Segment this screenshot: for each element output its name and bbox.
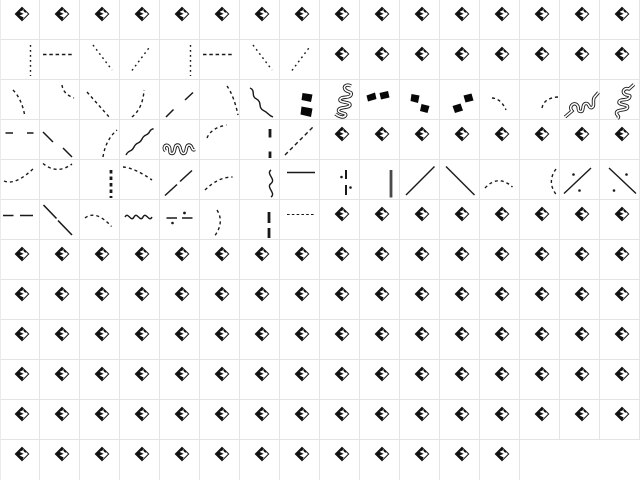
missing-glyph-icon: [240, 360, 280, 400]
missing-glyph-icon: [200, 400, 240, 440]
glyph-cell-notdef[interactable]: [320, 240, 360, 280]
glyph-cell-notdef[interactable]: [560, 40, 600, 80]
glyph-cell-notdef[interactable]: [0, 280, 40, 320]
glyph-cell-squiggle-vline[interactable]: [240, 160, 280, 200]
glyph-cell-dotted-vline[interactable]: [0, 40, 40, 80]
glyph-cell-notdef[interactable]: [280, 360, 320, 400]
missing-glyph-icon: [0, 240, 40, 280]
glyph-cell-notdef[interactable]: [240, 0, 280, 40]
glyph-cell-notdef[interactable]: [400, 400, 440, 440]
missing-glyph-icon: [400, 440, 440, 480]
glyph-cell-notdef[interactable]: [120, 280, 160, 320]
missing-glyph-icon: [400, 0, 440, 40]
glyph-cell-notdef[interactable]: [440, 440, 480, 480]
broken-diag-down-icon: [40, 120, 80, 160]
missing-glyph-icon: [320, 40, 360, 80]
glyph-cell-notdef[interactable]: [400, 360, 440, 400]
missing-glyph-icon: [80, 280, 120, 320]
glyph-cell-notdef[interactable]: [200, 0, 240, 40]
missing-glyph-icon: [240, 240, 280, 280]
glyph-cell-notdef[interactable]: [200, 320, 240, 360]
missing-glyph-icon: [480, 400, 520, 440]
glyph-cell-dotted-diag-up[interactable]: [280, 40, 320, 80]
glyph-cell-notdef[interactable]: [80, 0, 120, 40]
glyph-cell-notdef[interactable]: [40, 320, 80, 360]
glyph-cell-notdef[interactable]: [80, 240, 120, 280]
glyph-cell-notdef[interactable]: [480, 320, 520, 360]
glyph-cell-notdef[interactable]: [400, 320, 440, 360]
glyph-cell-dashdot-diag-down[interactable]: [600, 160, 640, 200]
glyph-cell-dashed-diag-down[interactable]: [80, 80, 120, 120]
missing-glyph-icon: [40, 320, 80, 360]
glyph-cell-notdef[interactable]: [160, 440, 200, 480]
missing-glyph-icon: [400, 280, 440, 320]
glyph-cell-notdef[interactable]: [440, 360, 480, 400]
glyph-cell-notdef[interactable]: [40, 280, 80, 320]
missing-glyph-icon: [520, 280, 560, 320]
glyph-cell-dotted-diag-down[interactable]: [240, 40, 280, 80]
missing-glyph-icon: [80, 400, 120, 440]
glyph-cell-notdef[interactable]: [600, 320, 640, 360]
missing-glyph-icon: [560, 240, 600, 280]
glyph-cell-dashed-paren-left[interactable]: [520, 160, 560, 200]
wave-hline-icon: [120, 200, 160, 240]
missing-glyph-icon: [600, 120, 640, 160]
glyph-cell-notdef[interactable]: [240, 360, 280, 400]
glyph-cell-notdef[interactable]: [360, 440, 400, 480]
glyph-cell-dotted-diag-down[interactable]: [80, 40, 120, 80]
glyph-cell-notdef[interactable]: [520, 360, 560, 400]
glyph-cell-dashed-curve-fall[interactable]: [120, 160, 160, 200]
missing-glyph-icon: [280, 280, 320, 320]
glyph-cell-notdef[interactable]: [40, 0, 80, 40]
glyph-cell-thick-broken-vline2[interactable]: [240, 200, 280, 240]
glyph-cell-meander-v2[interactable]: [600, 80, 640, 120]
missing-glyph-icon: [480, 240, 520, 280]
glyph-cell-notdef[interactable]: [200, 440, 240, 480]
missing-glyph-icon: [160, 320, 200, 360]
missing-glyph-icon: [600, 320, 640, 360]
glyph-cell-notdef[interactable]: [40, 400, 80, 440]
glyph-cell-notdef[interactable]: [600, 0, 640, 40]
missing-glyph-icon: [280, 320, 320, 360]
glyph-cell-notdef[interactable]: [480, 440, 520, 480]
glyph-cell-notdef[interactable]: [0, 440, 40, 480]
solid-diag-down-icon: [440, 160, 480, 200]
glyph-cell-notdef[interactable]: [520, 400, 560, 440]
glyph-cell-squiggle-diag-down[interactable]: [240, 80, 280, 120]
glyph-cell-notdef[interactable]: [600, 360, 640, 400]
glyph-cell-solid-diag-down-broken[interactable]: [40, 200, 80, 240]
missing-glyph-icon: [40, 280, 80, 320]
glyph-grid: [0, 0, 640, 480]
glyph-cell-notdef[interactable]: [440, 400, 480, 440]
glyph-cell-notdef[interactable]: [280, 400, 320, 440]
missing-glyph-icon: [560, 200, 600, 240]
dashed-diag-up-long-icon: [280, 120, 320, 160]
glyph-cell-notdef[interactable]: [520, 40, 560, 80]
glyph-cell-notdef[interactable]: [80, 400, 120, 440]
glyph-cell-meander-v[interactable]: [320, 80, 360, 120]
glyph-cell-notdef[interactable]: [480, 200, 520, 240]
glyph-cell-notdef[interactable]: [320, 0, 360, 40]
glyph-cell-notdef[interactable]: [80, 320, 120, 360]
missing-glyph-icon: [520, 200, 560, 240]
dashed-hill-icon: [480, 160, 520, 200]
glyph-cell-notdef[interactable]: [600, 280, 640, 320]
glyph-cell-notdef[interactable]: [400, 200, 440, 240]
glyph-cell-notdef[interactable]: [280, 440, 320, 480]
glyph-cell-broken-diag-up[interactable]: [160, 80, 200, 120]
glyph-cell-notdef[interactable]: [520, 240, 560, 280]
missing-glyph-icon: [360, 320, 400, 360]
dashed-arc-up-right-icon: [520, 80, 560, 120]
missing-glyph-icon: [280, 0, 320, 40]
glyph-cell-notdef[interactable]: [400, 440, 440, 480]
missing-glyph-icon: [360, 200, 400, 240]
glyph-cell-dashdot-diag-up[interactable]: [560, 160, 600, 200]
missing-glyph-icon: [200, 280, 240, 320]
glyph-cell-notdef[interactable]: [160, 280, 200, 320]
glyph-cell-dashed-curve-rise[interactable]: [0, 160, 40, 200]
solid-diag-up-icon: [400, 160, 440, 200]
meander-v2-icon: [600, 80, 640, 120]
glyph-cell-notdef[interactable]: [120, 320, 160, 360]
missing-glyph-icon: [320, 280, 360, 320]
missing-glyph-icon: [320, 440, 360, 480]
glyph-cell-notdef[interactable]: [520, 280, 560, 320]
glyph-cell-notdef[interactable]: [160, 320, 200, 360]
dashed-smile-icon: [40, 160, 80, 200]
glyph-cell-dashed-hline[interactable]: [40, 40, 80, 80]
glyph-cell-dashed-curve-ne[interactable]: [120, 80, 160, 120]
glyph-cell-solid-hline[interactable]: [280, 160, 320, 200]
dashed-curve-se-icon: [40, 80, 80, 120]
missing-glyph-icon: [0, 320, 40, 360]
glyph-cell-notdef[interactable]: [360, 360, 400, 400]
glyph-cell-notdef[interactable]: [400, 280, 440, 320]
glyph-cell-notdef[interactable]: [0, 240, 40, 280]
missing-glyph-icon: [480, 40, 520, 80]
glyph-cell-dashed-hline[interactable]: [200, 40, 240, 80]
glyph-cell-dotted-vline[interactable]: [160, 40, 200, 80]
glyph-cell-notdef[interactable]: [480, 0, 520, 40]
missing-glyph-icon: [40, 240, 80, 280]
dashed-paren-right-icon: [200, 200, 240, 240]
glyph-cell-notdef[interactable]: [600, 200, 640, 240]
glyph-cell-notdef[interactable]: [440, 200, 480, 240]
glyph-cell-notdef[interactable]: [400, 120, 440, 160]
glyph-cell-notdef[interactable]: [320, 440, 360, 480]
missing-glyph-icon: [560, 320, 600, 360]
missing-glyph-icon: [40, 0, 80, 40]
dashed-hill-low-icon: [80, 200, 120, 240]
glyph-cell-notdef[interactable]: [160, 360, 200, 400]
missing-glyph-icon: [400, 120, 440, 160]
dashdot-diag-up-icon: [560, 160, 600, 200]
glyph-cell-notdef[interactable]: [160, 240, 200, 280]
glyph-cell-notdef[interactable]: [40, 360, 80, 400]
glyph-cell-notdef[interactable]: [0, 360, 40, 400]
missing-glyph-icon: [440, 400, 480, 440]
missing-glyph-icon: [480, 120, 520, 160]
glyph-cell-double-dash-h[interactable]: [0, 120, 40, 160]
glyph-cell-notdef[interactable]: [440, 40, 480, 80]
glyph-cell-notdef[interactable]: [560, 120, 600, 160]
glyph-cell-notdef[interactable]: [440, 280, 480, 320]
missing-glyph-icon: [200, 240, 240, 280]
glyph-cell-dashdot-hline[interactable]: [160, 200, 200, 240]
glyph-cell-notdef[interactable]: [600, 40, 640, 80]
missing-glyph-icon: [400, 40, 440, 80]
glyph-cell-notdef[interactable]: [240, 440, 280, 480]
thick-broken-vline-icon: [240, 120, 280, 160]
dashed-curve-s-icon: [0, 80, 40, 120]
glyph-cell-notdef[interactable]: [120, 0, 160, 40]
glyph-cell-notdef[interactable]: [440, 0, 480, 40]
dashed-hline-icon: [200, 40, 240, 80]
missing-glyph-icon: [320, 400, 360, 440]
glyph-cell-dashed-curve-se[interactable]: [40, 80, 80, 120]
glyph-cell-notdef[interactable]: [200, 360, 240, 400]
missing-glyph-icon: [0, 360, 40, 400]
glyph-cell-dashed-curve-s[interactable]: [0, 80, 40, 120]
missing-glyph-icon: [440, 440, 480, 480]
glyph-cell-notdef[interactable]: [560, 0, 600, 40]
glyph-cell-notdef[interactable]: [360, 120, 400, 160]
missing-glyph-icon: [120, 320, 160, 360]
glyph-cell-notdef[interactable]: [560, 280, 600, 320]
glyph-cell-wave-hline[interactable]: [120, 200, 160, 240]
glyph-cell-notdef[interactable]: [520, 320, 560, 360]
glyph-cell-brush-dashes-down[interactable]: [400, 80, 440, 120]
missing-glyph-icon: [560, 280, 600, 320]
glyph-cell-notdef[interactable]: [320, 280, 360, 320]
missing-glyph-icon: [160, 360, 200, 400]
dashed-curve-fall-icon: [120, 160, 160, 200]
glyph-cell-notdef[interactable]: [560, 200, 600, 240]
glyph-cell-notdef[interactable]: [120, 440, 160, 480]
glyph-cell-notdef[interactable]: [120, 360, 160, 400]
glyph-cell-notdef[interactable]: [600, 120, 640, 160]
missing-glyph-icon: [560, 0, 600, 40]
glyph-cell-notdef[interactable]: [120, 400, 160, 440]
missing-glyph-icon: [280, 400, 320, 440]
glyph-cell-notdef[interactable]: [360, 400, 400, 440]
glyph-cell-notdef[interactable]: [160, 400, 200, 440]
glyph-cell-notdef[interactable]: [240, 240, 280, 280]
glyph-cell-notdef[interactable]: [400, 0, 440, 40]
glyph-cell-notdef[interactable]: [0, 320, 40, 360]
glyph-cell-dashed-diag-up-long[interactable]: [280, 120, 320, 160]
fine-dashed-hline-icon: [280, 200, 320, 240]
glyph-cell-notdef[interactable]: [480, 120, 520, 160]
glyph-cell-broken-solid-diag-up[interactable]: [160, 160, 200, 200]
glyph-cell-notdef[interactable]: [360, 240, 400, 280]
glyph-cell-notdef[interactable]: [440, 240, 480, 280]
missing-glyph-icon: [280, 240, 320, 280]
glyph-cell-dashed-paren-right[interactable]: [200, 200, 240, 240]
missing-glyph-icon: [440, 40, 480, 80]
glyph-cell-notdef[interactable]: [320, 120, 360, 160]
missing-glyph-icon: [120, 400, 160, 440]
glyph-cell-dotted-diag-up[interactable]: [120, 40, 160, 80]
glyph-cell-notdef[interactable]: [0, 400, 40, 440]
glyph-cell-notdef[interactable]: [400, 240, 440, 280]
glyph-cell-dashed-curve-flat[interactable]: [200, 160, 240, 200]
glyph-cell-solid-diag-down[interactable]: [440, 160, 480, 200]
thick-broken-vline2-icon: [240, 200, 280, 240]
glyph-cell-long-dashes-h[interactable]: [0, 200, 40, 240]
glyph-cell-solid-diag-up[interactable]: [400, 160, 440, 200]
glyph-cell-notdef[interactable]: [280, 0, 320, 40]
missing-glyph-icon: [240, 440, 280, 480]
glyph-cell-notdef[interactable]: [240, 320, 280, 360]
missing-glyph-icon: [520, 0, 560, 40]
glyph-cell-dashed-arc-rise[interactable]: [200, 120, 240, 160]
glyph-cell-notdef[interactable]: [320, 400, 360, 440]
glyph-cell-wave-diag-up[interactable]: [120, 120, 160, 160]
glyph-cell-notdef[interactable]: [560, 240, 600, 280]
glyph-cell-notdef[interactable]: [480, 40, 520, 80]
glyph-cell-broken-diag-down[interactable]: [40, 120, 80, 160]
dashed-curve-rise-icon: [0, 160, 40, 200]
dotted-vline-icon: [160, 40, 200, 80]
missing-glyph-icon: [600, 240, 640, 280]
missing-glyph-icon: [80, 440, 120, 480]
missing-glyph-icon: [120, 280, 160, 320]
glyph-cell-dashed-curve-n[interactable]: [80, 120, 120, 160]
glyph-cell-notdef[interactable]: [360, 0, 400, 40]
dotted-diag-up-icon: [280, 40, 320, 80]
missing-glyph-icon: [320, 320, 360, 360]
glyph-cell-notdef[interactable]: [480, 280, 520, 320]
glyph-cell-notdef[interactable]: [560, 320, 600, 360]
missing-glyph-icon: [360, 400, 400, 440]
glyph-cell-notdef[interactable]: [320, 320, 360, 360]
missing-glyph-icon: [600, 400, 640, 440]
missing-glyph-icon: [400, 240, 440, 280]
glyph-cell-solid-vbar[interactable]: [360, 160, 400, 200]
glyph-cell-notdef[interactable]: [480, 360, 520, 400]
missing-glyph-icon: [440, 240, 480, 280]
glyph-cell-notdef[interactable]: [40, 440, 80, 480]
glyph-cell-notdef[interactable]: [440, 320, 480, 360]
glyph-cell-meander-diag[interactable]: [560, 80, 600, 120]
glyph-cell-meander-h[interactable]: [160, 120, 200, 160]
glyph-cell-fine-dashed-hline[interactable]: [280, 200, 320, 240]
glyph-cell-notdef[interactable]: [40, 240, 80, 280]
glyph-cell-notdef[interactable]: [560, 360, 600, 400]
missing-glyph-icon: [240, 400, 280, 440]
glyph-cell-notdef[interactable]: [80, 280, 120, 320]
glyph-cell-thick-dashed-vline[interactable]: [80, 160, 120, 200]
glyph-cell-dashed-smile[interactable]: [40, 160, 80, 200]
dashed-arc-rise-icon: [200, 120, 240, 160]
missing-glyph-icon: [160, 240, 200, 280]
glyph-cell-notdef[interactable]: [440, 120, 480, 160]
glyph-cell-notdef[interactable]: [360, 40, 400, 80]
glyph-cell-notdef[interactable]: [360, 320, 400, 360]
glyph-cell-notdef[interactable]: [80, 360, 120, 400]
glyph-cell-brush-dashes-up[interactable]: [440, 80, 480, 120]
missing-glyph-icon: [560, 40, 600, 80]
glyph-cell-notdef[interactable]: [320, 200, 360, 240]
glyph-cell-notdef[interactable]: [520, 0, 560, 40]
missing-glyph-icon: [200, 360, 240, 400]
glyph-cell-notdef[interactable]: [320, 360, 360, 400]
glyph-cell-notdef[interactable]: [480, 240, 520, 280]
glyph-cell-notdef[interactable]: [360, 280, 400, 320]
glyph-cell-dashed-arc-up-right[interactable]: [520, 80, 560, 120]
glyph-cell-notdef[interactable]: [320, 40, 360, 80]
glyph-cell-notdef[interactable]: [120, 240, 160, 280]
glyph-cell-notdef[interactable]: [520, 120, 560, 160]
glyph-cell-dashed-hill[interactable]: [480, 160, 520, 200]
missing-glyph-icon: [400, 400, 440, 440]
missing-glyph-icon: [600, 200, 640, 240]
glyph-cell-notdef[interactable]: [0, 0, 40, 40]
glyph-cell-notdef[interactable]: [560, 400, 600, 440]
glyph-cell-notdef[interactable]: [280, 280, 320, 320]
glyph-cell-notdef[interactable]: [280, 240, 320, 280]
glyph-cell-notdef[interactable]: [520, 200, 560, 240]
glyph-cell-brush-dashes-v[interactable]: [280, 80, 320, 120]
glyph-cell-notdef[interactable]: [240, 400, 280, 440]
missing-glyph-icon: [160, 440, 200, 480]
missing-glyph-icon: [440, 360, 480, 400]
missing-glyph-icon: [360, 240, 400, 280]
missing-glyph-icon: [120, 0, 160, 40]
missing-glyph-icon: [40, 440, 80, 480]
glyph-cell-dashed-arc-down-right[interactable]: [480, 80, 520, 120]
missing-glyph-icon: [240, 320, 280, 360]
missing-glyph-icon: [600, 280, 640, 320]
missing-glyph-icon: [80, 360, 120, 400]
dashed-paren-left-icon: [520, 160, 560, 200]
missing-glyph-icon: [440, 280, 480, 320]
glyph-cell-dashed-hill-low[interactable]: [80, 200, 120, 240]
glyph-cell-thick-broken-vline[interactable]: [240, 120, 280, 160]
glyph-cell-notdef[interactable]: [480, 400, 520, 440]
missing-glyph-icon: [400, 200, 440, 240]
glyph-cell-notdef[interactable]: [80, 440, 120, 480]
glyph-cell-notdef[interactable]: [600, 240, 640, 280]
missing-glyph-icon: [560, 360, 600, 400]
missing-glyph-icon: [520, 360, 560, 400]
missing-glyph-icon: [480, 440, 520, 480]
glyph-cell-notdef[interactable]: [360, 200, 400, 240]
glyph-cell-notdef[interactable]: [240, 280, 280, 320]
glyph-cell-notdef[interactable]: [160, 0, 200, 40]
missing-glyph-icon: [80, 320, 120, 360]
glyph-cell-notdef[interactable]: [200, 400, 240, 440]
thick-dashed-vline-icon: [80, 160, 120, 200]
glyph-cell-dashed-curve-s-long[interactable]: [200, 80, 240, 120]
wave-diag-up-icon: [120, 120, 160, 160]
glyph-cell-notdef[interactable]: [200, 240, 240, 280]
missing-glyph-icon: [0, 280, 40, 320]
glyph-cell-dashdot-vline[interactable]: [320, 160, 360, 200]
glyph-cell-notdef[interactable]: [600, 400, 640, 440]
missing-glyph-icon: [280, 360, 320, 400]
glyph-cell-brush-dashes-h[interactable]: [360, 80, 400, 120]
missing-glyph-icon: [440, 0, 480, 40]
glyph-cell-notdef[interactable]: [280, 320, 320, 360]
glyph-cell-notdef[interactable]: [200, 280, 240, 320]
glyph-cell-notdef[interactable]: [400, 40, 440, 80]
missing-glyph-icon: [320, 240, 360, 280]
